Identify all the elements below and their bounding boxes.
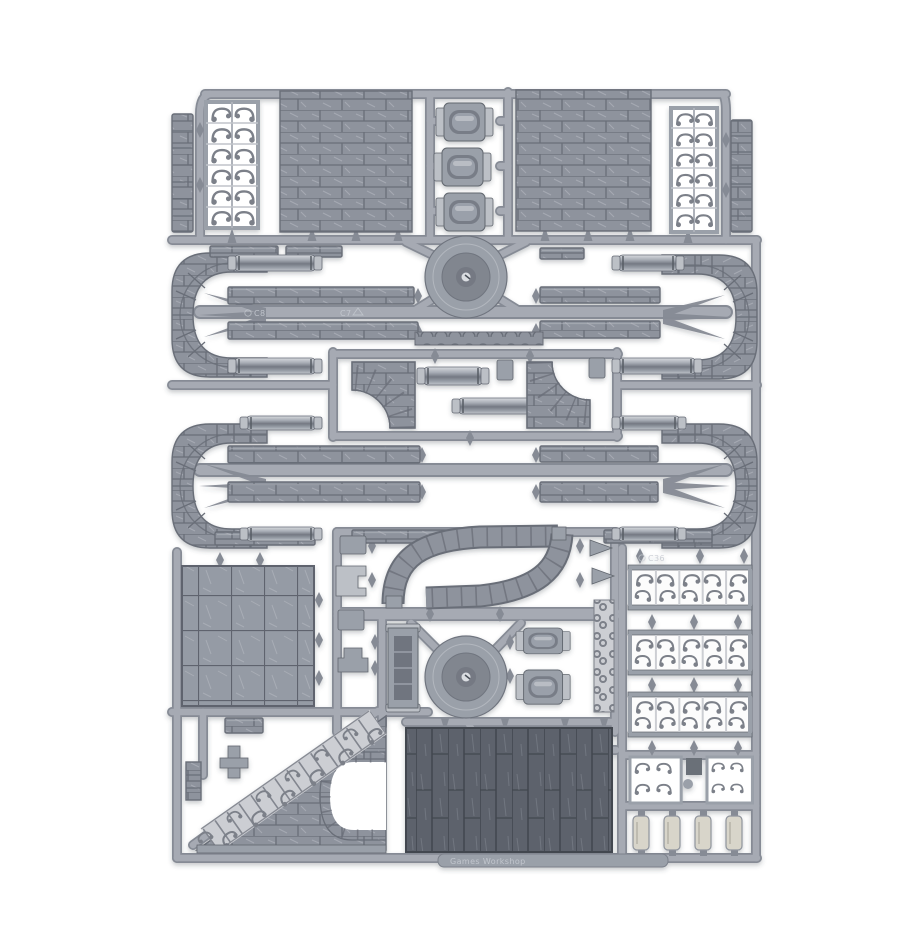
walkway-plank bbox=[228, 446, 420, 463]
ornate-railing-horizontal bbox=[628, 692, 752, 737]
round-hub-base-lower bbox=[425, 636, 507, 718]
part-code-c7: C7 bbox=[340, 309, 351, 318]
handrail-tube bbox=[612, 255, 684, 271]
round-hub-base-upper bbox=[425, 236, 507, 318]
ornate-railing-vertical-right bbox=[671, 108, 717, 232]
small-knob-piece bbox=[683, 779, 693, 789]
ladder-frame-piece bbox=[386, 624, 420, 712]
walkway-plank bbox=[540, 321, 660, 338]
lantern-pipe-segments-top bbox=[434, 103, 493, 231]
handrail-tube bbox=[612, 527, 686, 541]
ornate-corner-bracket bbox=[707, 757, 752, 803]
stone-wall-panel-2 bbox=[516, 90, 651, 231]
handrail-tube bbox=[417, 367, 489, 385]
small-bracket-2 bbox=[589, 358, 605, 378]
walkway-plank bbox=[540, 482, 658, 502]
filigree-strip-vertical bbox=[594, 600, 614, 712]
ornate-corner-bracket bbox=[630, 757, 681, 803]
plank-floor-panel bbox=[406, 728, 612, 852]
handrail-tube bbox=[240, 416, 322, 430]
stone-tile-floor-panel bbox=[182, 566, 314, 706]
small-block-piece bbox=[686, 758, 702, 775]
product-photo: Games Workshop C8 C7 C36 bbox=[0, 0, 920, 950]
part-code-c36: C36 bbox=[648, 554, 665, 563]
handrail-tube bbox=[240, 527, 322, 541]
ornate-railing-horizontal bbox=[628, 630, 752, 675]
runner-embossed-text: Games Workshop bbox=[450, 857, 526, 866]
part-code-c8: C8 bbox=[254, 309, 265, 318]
runner-text-bar: Games Workshop bbox=[438, 854, 668, 867]
sprue-illustration: Games Workshop C8 C7 C36 bbox=[0, 0, 920, 950]
ornate-railing-horizontal-group bbox=[628, 565, 752, 737]
decorated-trim-strip bbox=[415, 332, 543, 345]
small-bracket-1 bbox=[497, 360, 513, 380]
walkway-plank bbox=[228, 482, 420, 502]
handrail-tube bbox=[612, 416, 686, 430]
walkway-plank bbox=[540, 287, 660, 303]
handrail-tube bbox=[228, 358, 322, 374]
stone-pillar-strip-left bbox=[172, 114, 193, 232]
ornate-railing-vertical-left bbox=[206, 102, 258, 228]
walkway-plank bbox=[228, 287, 414, 304]
handrail-tube bbox=[612, 358, 702, 374]
walkway-plank bbox=[540, 248, 584, 259]
ornate-railing-horizontal bbox=[628, 565, 752, 610]
walkway-plank bbox=[228, 322, 418, 339]
walkway-plank bbox=[225, 718, 263, 733]
handrail-tube bbox=[228, 255, 322, 271]
stone-pillar-strip-right bbox=[731, 120, 752, 232]
stone-wall-panel-1 bbox=[280, 91, 412, 232]
walkway-plank bbox=[540, 446, 658, 462]
